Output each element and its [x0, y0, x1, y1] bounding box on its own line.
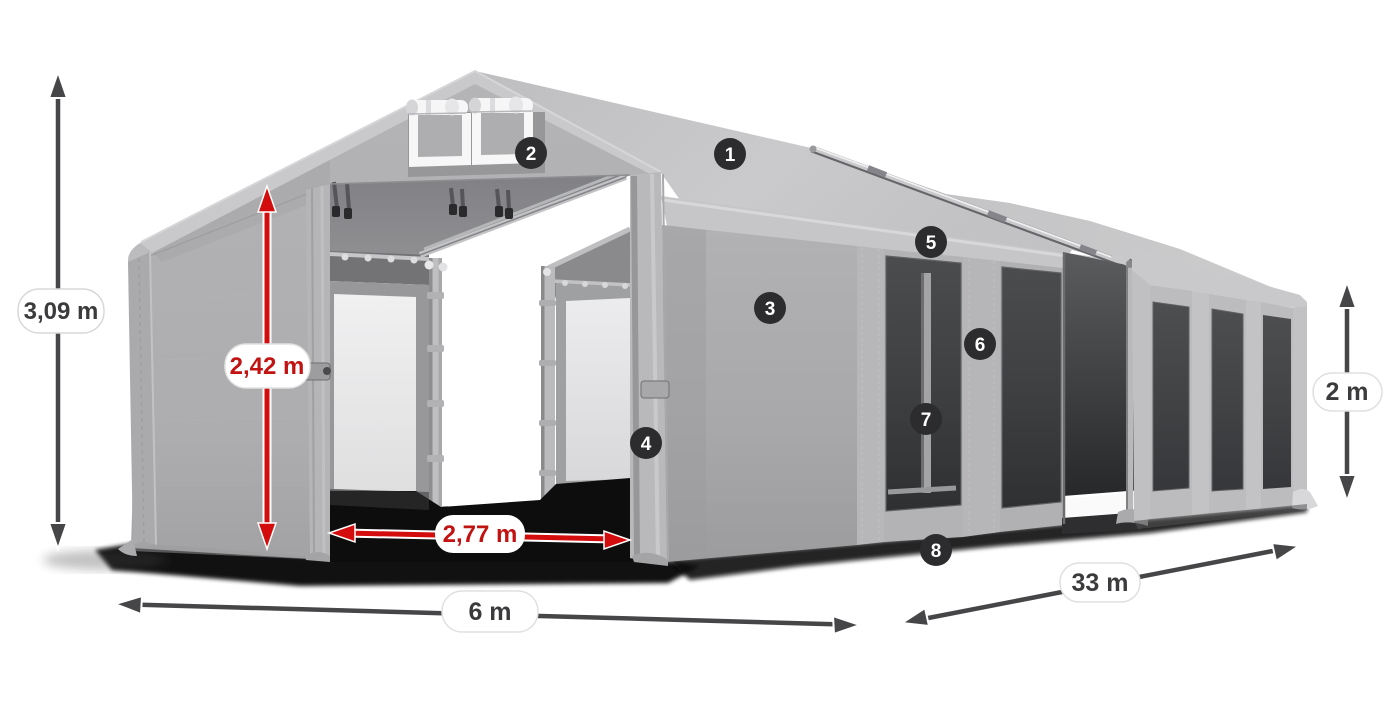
svg-text:2: 2 [526, 144, 537, 165]
svg-text:2,42 m: 2,42 m [230, 353, 305, 380]
svg-text:6 m: 6 m [468, 598, 511, 626]
svg-text:33 m: 33 m [1072, 569, 1129, 597]
svg-text:6: 6 [975, 335, 986, 356]
svg-text:5: 5 [926, 233, 937, 254]
svg-text:2 m: 2 m [1325, 378, 1368, 406]
svg-text:3: 3 [765, 299, 776, 320]
svg-text:8: 8 [931, 541, 942, 562]
svg-text:1: 1 [725, 145, 736, 166]
svg-text:2,77 m: 2,77 m [443, 521, 518, 548]
svg-text:4: 4 [641, 434, 652, 455]
svg-text:3,09 m: 3,09 m [24, 298, 99, 325]
svg-text:7: 7 [921, 410, 932, 431]
